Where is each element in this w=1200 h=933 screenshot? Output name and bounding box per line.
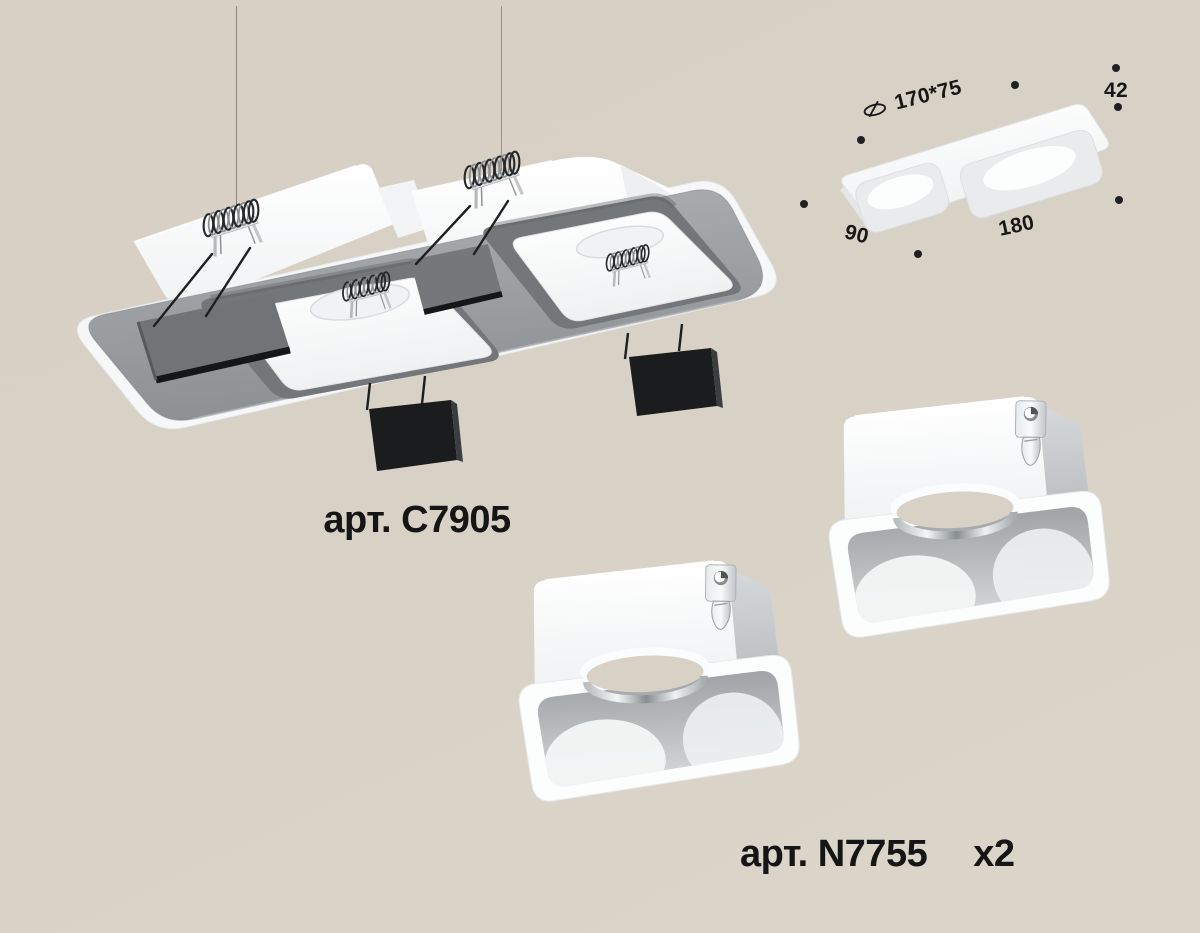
anchor-plate (629, 348, 723, 416)
insert-article-row: арт. N7755 x2 (740, 833, 1015, 876)
cutout-icon (860, 97, 891, 119)
frame-illustration (60, 130, 780, 480)
dim-width-value: 90 (842, 220, 871, 249)
dimension-dot (1114, 103, 1122, 111)
dimension-dot (1011, 81, 1019, 89)
dimension-dot (914, 250, 922, 258)
insert-count-label: x2 (973, 833, 1014, 876)
dim-height-value: 42 (1104, 79, 1128, 103)
insert-illustration (797, 392, 1112, 644)
dimension-dot (1115, 196, 1123, 204)
dimension-dot (800, 200, 808, 208)
dimension-dot (1112, 64, 1120, 72)
product-sheet: 170*75 42 90 180 арт. C7905 арт. N7755 x… (0, 0, 1200, 933)
dimension-dot (857, 136, 865, 144)
anchor-plate (369, 400, 463, 471)
frame-article-label: арт. C7905 (297, 499, 537, 542)
insert-illustration (487, 556, 802, 808)
dim-width-label: 90 (842, 220, 871, 249)
insert-article-label: арт. N7755 (740, 833, 927, 876)
dim-height-label: 42 (1104, 79, 1128, 103)
